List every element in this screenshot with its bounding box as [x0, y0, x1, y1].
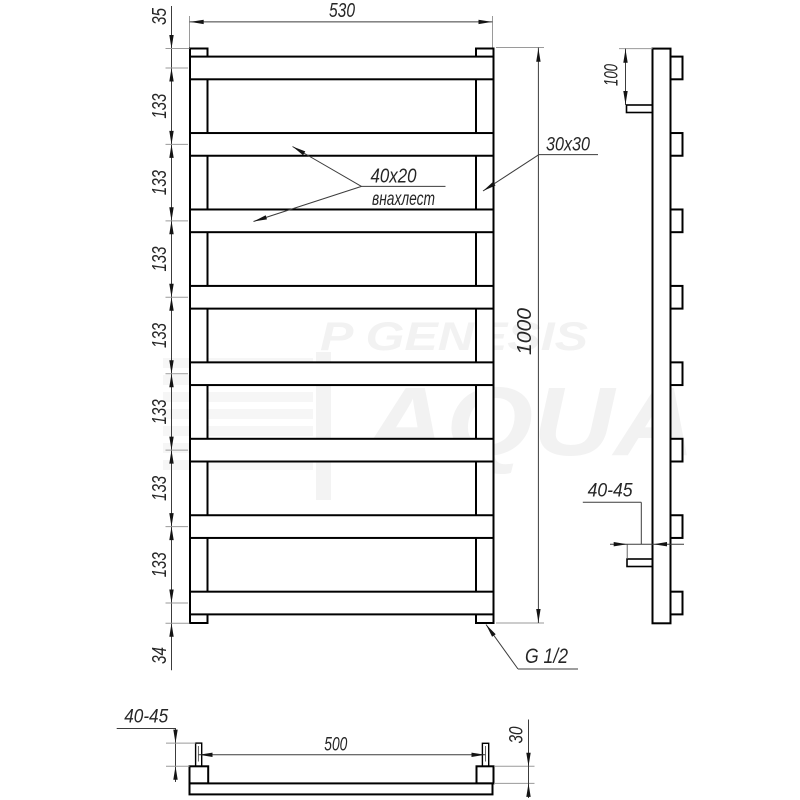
svg-text:530: 530 — [329, 0, 355, 22]
svg-text:30: 30 — [507, 726, 528, 743]
svg-text:40-45: 40-45 — [124, 707, 168, 728]
svg-text:133: 133 — [149, 399, 171, 424]
svg-text:внахлест: внахлест — [372, 189, 435, 210]
svg-text:133: 133 — [149, 247, 171, 272]
svg-text:133: 133 — [149, 170, 171, 195]
svg-text:35: 35 — [149, 7, 171, 25]
svg-text:40x20: 40x20 — [371, 166, 417, 188]
svg-text:P GENESIS: P GENESIS — [320, 315, 588, 359]
svg-text:30x30: 30x30 — [546, 135, 590, 156]
svg-text:133: 133 — [149, 552, 171, 577]
svg-text:G 1/2: G 1/2 — [525, 645, 568, 668]
svg-text:133: 133 — [149, 94, 171, 119]
svg-text:40-45: 40-45 — [588, 481, 633, 502]
svg-text:100: 100 — [602, 64, 623, 86]
svg-text:34: 34 — [149, 647, 171, 664]
svg-text:133: 133 — [149, 476, 171, 501]
svg-text:133: 133 — [149, 323, 171, 348]
svg-text:1000: 1000 — [514, 308, 536, 355]
svg-text:500: 500 — [324, 735, 347, 756]
